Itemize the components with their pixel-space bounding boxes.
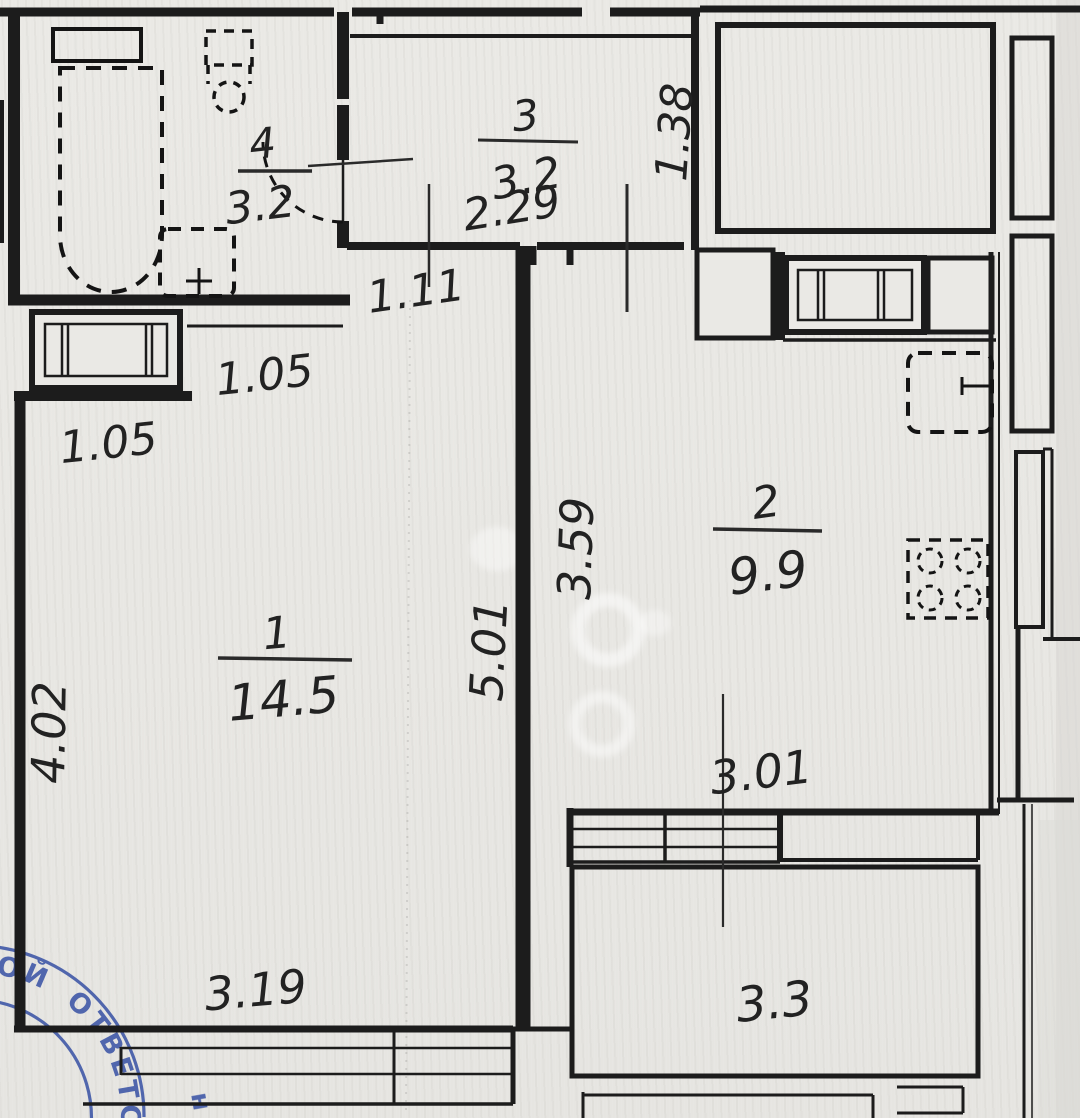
window-room1-left — [32, 312, 180, 388]
dim-room-left-depth: 4.02 — [21, 681, 77, 784]
floor-plan-sheet: ОЙ ОТВЕТСТВЕН н — [0, 0, 1080, 1118]
stamp: ОЙ ОТВЕТСТВЕН н — [0, 0, 217, 1118]
toilet-icon — [206, 31, 252, 112]
dim-pier-a: 1.05 — [213, 345, 316, 406]
dim-hall-niche-width: 1.38 — [646, 81, 704, 182]
dim-hall-width: 2.29 — [459, 176, 564, 242]
room-3-number: 3 — [510, 90, 542, 142]
bathtub-icon — [60, 68, 162, 292]
room-2-area: 9.9 — [725, 539, 811, 606]
stove-icon — [908, 540, 988, 618]
window-kitchen-balcony — [570, 808, 999, 867]
room-3-fraction-line — [478, 140, 578, 142]
room-1-fraction-line — [218, 658, 352, 660]
balcony-outline — [572, 867, 978, 1076]
kitchen-top-wall-block — [697, 250, 773, 338]
dim-room-depth: 5.01 — [459, 597, 518, 702]
shelf — [53, 29, 141, 61]
room-2-number: 2 — [749, 475, 784, 529]
room-1-area: 14.5 — [226, 665, 342, 732]
fridge-icon — [908, 353, 992, 432]
balcony-area-label: 3.3 — [733, 970, 815, 1034]
window-kitchen-top — [786, 258, 924, 332]
sheet-edge-shading-lower — [1038, 820, 1080, 1118]
room-2-fraction-line — [713, 529, 822, 531]
dim-room-width: 3.19 — [202, 959, 309, 1022]
floor-plan-drawing: ОЙ ОТВЕТСТВЕН н — [0, 0, 1080, 1118]
dim-pier-b: 1.05 — [57, 413, 160, 474]
room-4-area: 3.2 — [222, 176, 298, 235]
right-strip-1 — [1012, 38, 1052, 218]
washing-machine-icon — [160, 229, 234, 296]
dim-kitchen-depth: 3.59 — [547, 496, 605, 600]
dim-kitchen-width: 3.01 — [707, 739, 815, 805]
room-4-number: 4 — [247, 118, 279, 170]
right-strip-3 — [1016, 452, 1043, 627]
room4-leader-line — [308, 159, 413, 166]
dim-passage-width: 1.11 — [364, 260, 468, 324]
room-1-number: 1 — [261, 607, 293, 660]
kitchen-top-wall-vent — [928, 258, 992, 332]
neighbour-balcony — [718, 25, 993, 231]
paper-crease — [406, 300, 410, 1112]
right-strip-2 — [1012, 236, 1052, 431]
